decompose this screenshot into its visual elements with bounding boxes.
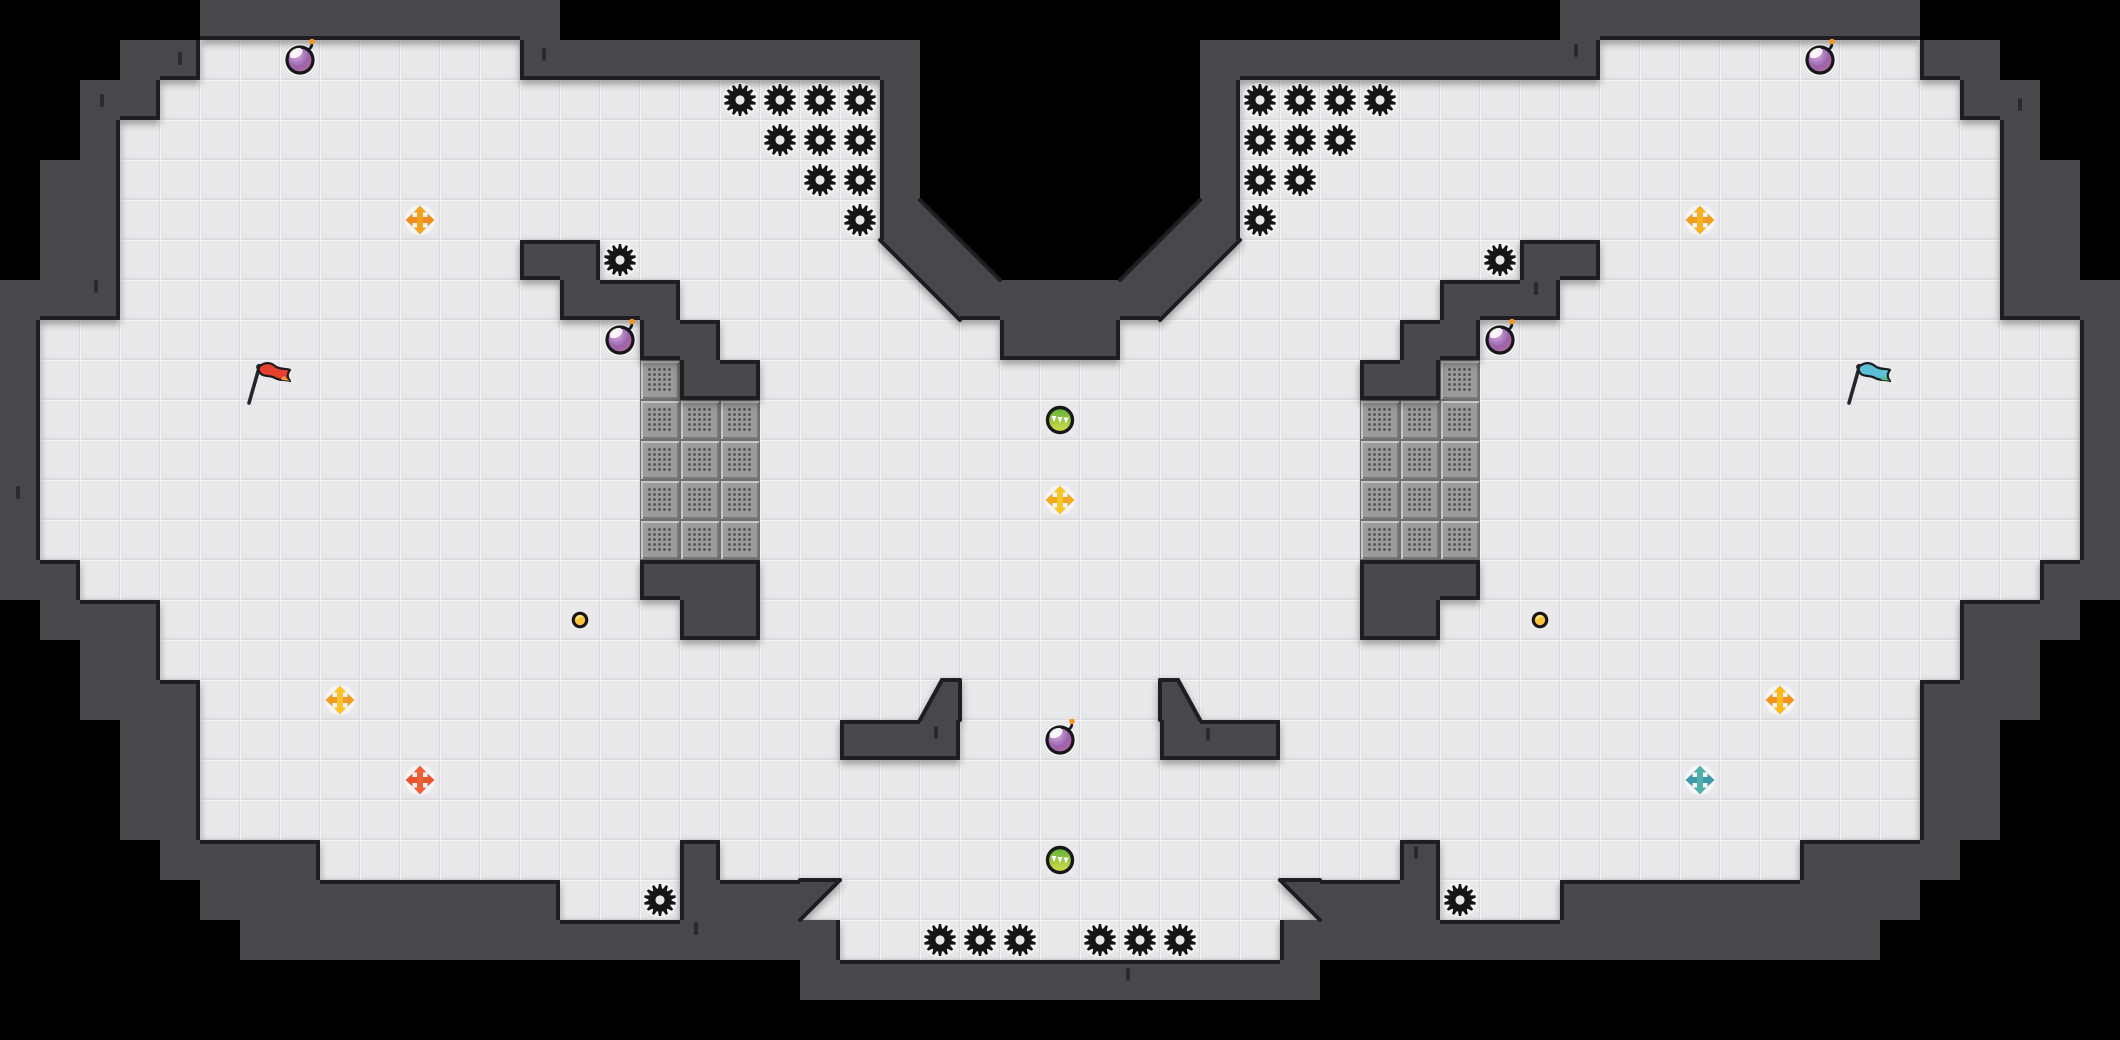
saw-gear-icon bbox=[643, 883, 677, 917]
saw-gear-icon bbox=[1443, 883, 1477, 917]
bomb-pickup-icon bbox=[1484, 319, 1516, 356]
powerup-cross-icon bbox=[405, 205, 435, 235]
saw-gear-icon bbox=[1243, 83, 1277, 117]
coin-dot-icon bbox=[572, 612, 589, 629]
coin-dot-icon bbox=[1532, 612, 1549, 629]
green-orb-icon bbox=[1048, 408, 1073, 433]
powerup-cross-icon bbox=[325, 685, 355, 715]
saw-gear-icon bbox=[723, 83, 757, 117]
saw-gear-icon bbox=[763, 123, 797, 157]
powerup-cross-icon bbox=[1765, 685, 1795, 715]
bomb-pickup-icon bbox=[284, 39, 316, 76]
saw-gear-icon bbox=[1163, 923, 1197, 957]
powerup-cross-icon bbox=[1045, 485, 1075, 515]
saw-gear-icon bbox=[1283, 83, 1317, 117]
saw-gear-icon bbox=[1243, 123, 1277, 157]
green-orb-icon bbox=[1048, 848, 1073, 873]
saw-gear-icon bbox=[843, 83, 877, 117]
powerup-cross-icon bbox=[1685, 205, 1715, 235]
teal-flag-icon bbox=[1849, 363, 1890, 403]
items-svg bbox=[0, 0, 2120, 1040]
saw-gear-icon bbox=[803, 123, 837, 157]
game-map bbox=[0, 0, 2120, 1040]
powerup-cross-icon bbox=[1685, 765, 1715, 795]
saw-gear-icon bbox=[843, 163, 877, 197]
saw-gear-icon bbox=[1323, 123, 1357, 157]
saw-gear-icon bbox=[923, 923, 957, 957]
saw-gear-icon bbox=[1363, 83, 1397, 117]
bomb-pickup-icon bbox=[604, 319, 636, 356]
saw-gear-icon bbox=[1003, 923, 1037, 957]
powerup-cross-icon bbox=[405, 765, 435, 795]
saw-gear-icon bbox=[1283, 123, 1317, 157]
bomb-pickup-icon bbox=[1804, 39, 1836, 76]
saw-gear-icon bbox=[1123, 923, 1157, 957]
saw-gear-icon bbox=[1283, 163, 1317, 197]
saw-gear-icon bbox=[803, 163, 837, 197]
saw-gear-icon bbox=[603, 243, 637, 277]
items-layer bbox=[0, 0, 2120, 1040]
saw-gear-icon bbox=[843, 123, 877, 157]
saw-gear-icon bbox=[1483, 243, 1517, 277]
red-flag-icon bbox=[249, 363, 290, 403]
saw-gear-icon bbox=[763, 83, 797, 117]
saw-gear-icon bbox=[963, 923, 997, 957]
saw-gear-icon bbox=[1323, 83, 1357, 117]
saw-gear-icon bbox=[843, 203, 877, 237]
saw-gear-icon bbox=[1083, 923, 1117, 957]
bomb-pickup-icon bbox=[1044, 719, 1076, 756]
saw-gear-icon bbox=[1243, 203, 1277, 237]
saw-gear-icon bbox=[803, 83, 837, 117]
saw-gear-icon bbox=[1243, 163, 1277, 197]
